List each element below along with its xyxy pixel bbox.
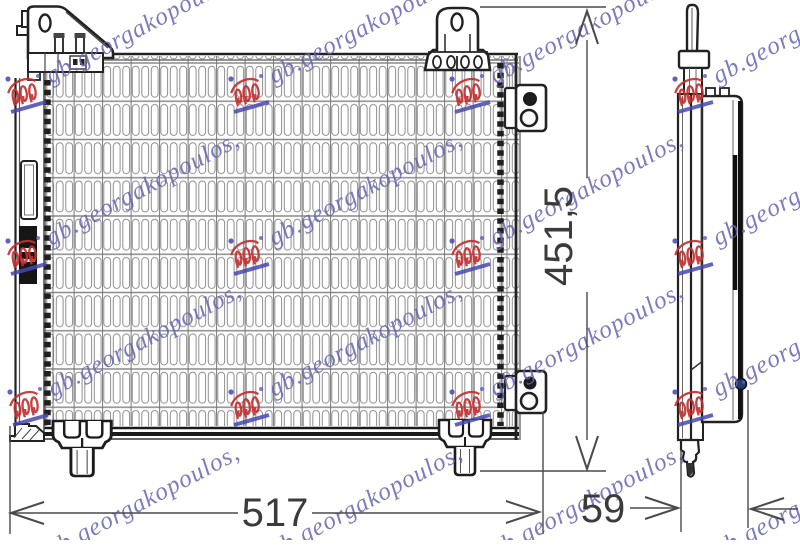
drier-sight-window — [21, 161, 37, 219]
pipe-port-filled — [523, 92, 537, 106]
drier-black-block — [19, 226, 37, 284]
brand-stamp-icon — [5, 236, 46, 274]
bottom-left-foot — [53, 421, 111, 476]
left-bottom-foot — [10, 424, 44, 441]
watermark-text: gb.georgakopoulos, — [708, 0, 800, 89]
bracket-hole — [452, 14, 463, 31]
condenser-diagram: gb.georgakopoulos, gb.georgakopoulos, gb… — [0, 0, 800, 540]
technical-drawing-canvas: gb.georgakopoulos, gb.georgakopoulos, gb… — [0, 0, 800, 540]
top-right-bracket — [425, 8, 490, 70]
dimension-height-label: 451,5 — [537, 186, 581, 286]
right-upper-bracket — [505, 85, 546, 131]
bracket-hole — [40, 15, 51, 32]
brand-stamp-icon — [7, 387, 48, 425]
dimension-depth-label: 59 — [581, 487, 626, 531]
watermark-text: gb.georgakopoulos, — [708, 439, 800, 540]
pipe-port-open — [521, 110, 537, 126]
pipe-port-open — [521, 393, 537, 409]
dimension-width-label: 517 — [242, 491, 309, 535]
